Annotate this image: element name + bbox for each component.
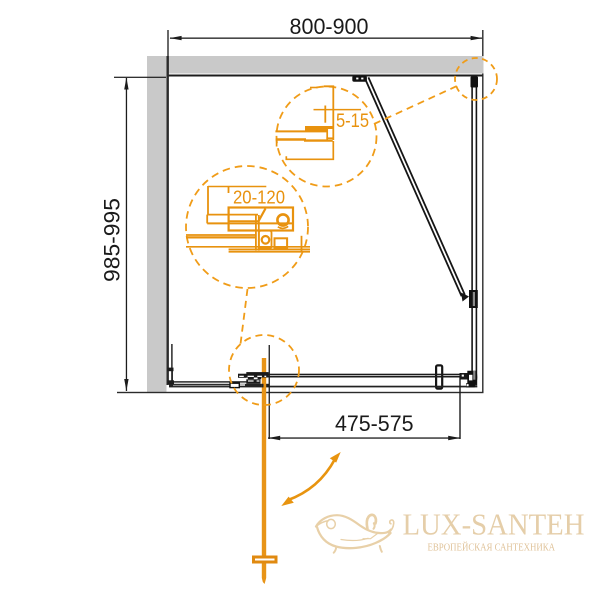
svg-text:800-900: 800-900 (290, 14, 369, 39)
svg-text:ЕВРОПЕЙСКАЯ САНТЕХНИКА: ЕВРОПЕЙСКАЯ САНТЕХНИКА (428, 542, 556, 554)
svg-text:475-575: 475-575 (335, 411, 414, 436)
svg-text:LUX-SANTEH: LUX-SANTEH (403, 507, 585, 542)
svg-text:5-15: 5-15 (336, 111, 369, 132)
svg-text:985-995: 985-995 (100, 198, 125, 282)
svg-text:20-120: 20-120 (233, 188, 285, 208)
